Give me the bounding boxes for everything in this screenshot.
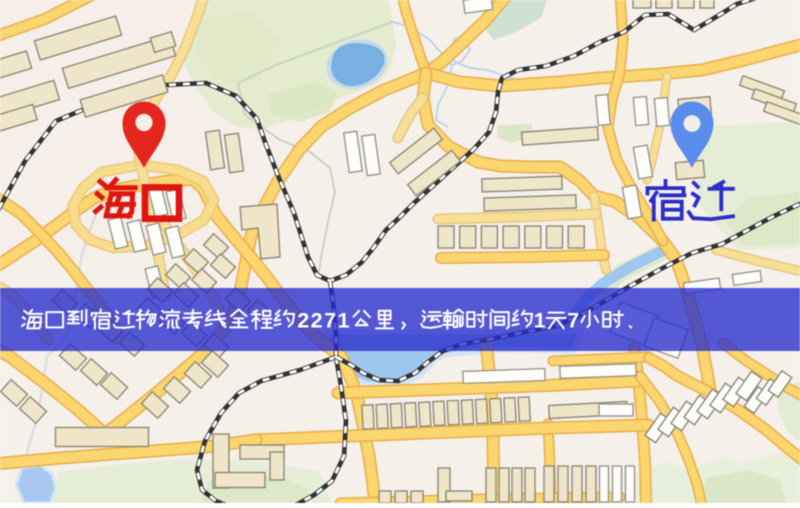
svg-text:2271: 2271 — [297, 308, 351, 332]
svg-text:7: 7 — [567, 308, 579, 332]
svg-text:1: 1 — [534, 308, 546, 332]
